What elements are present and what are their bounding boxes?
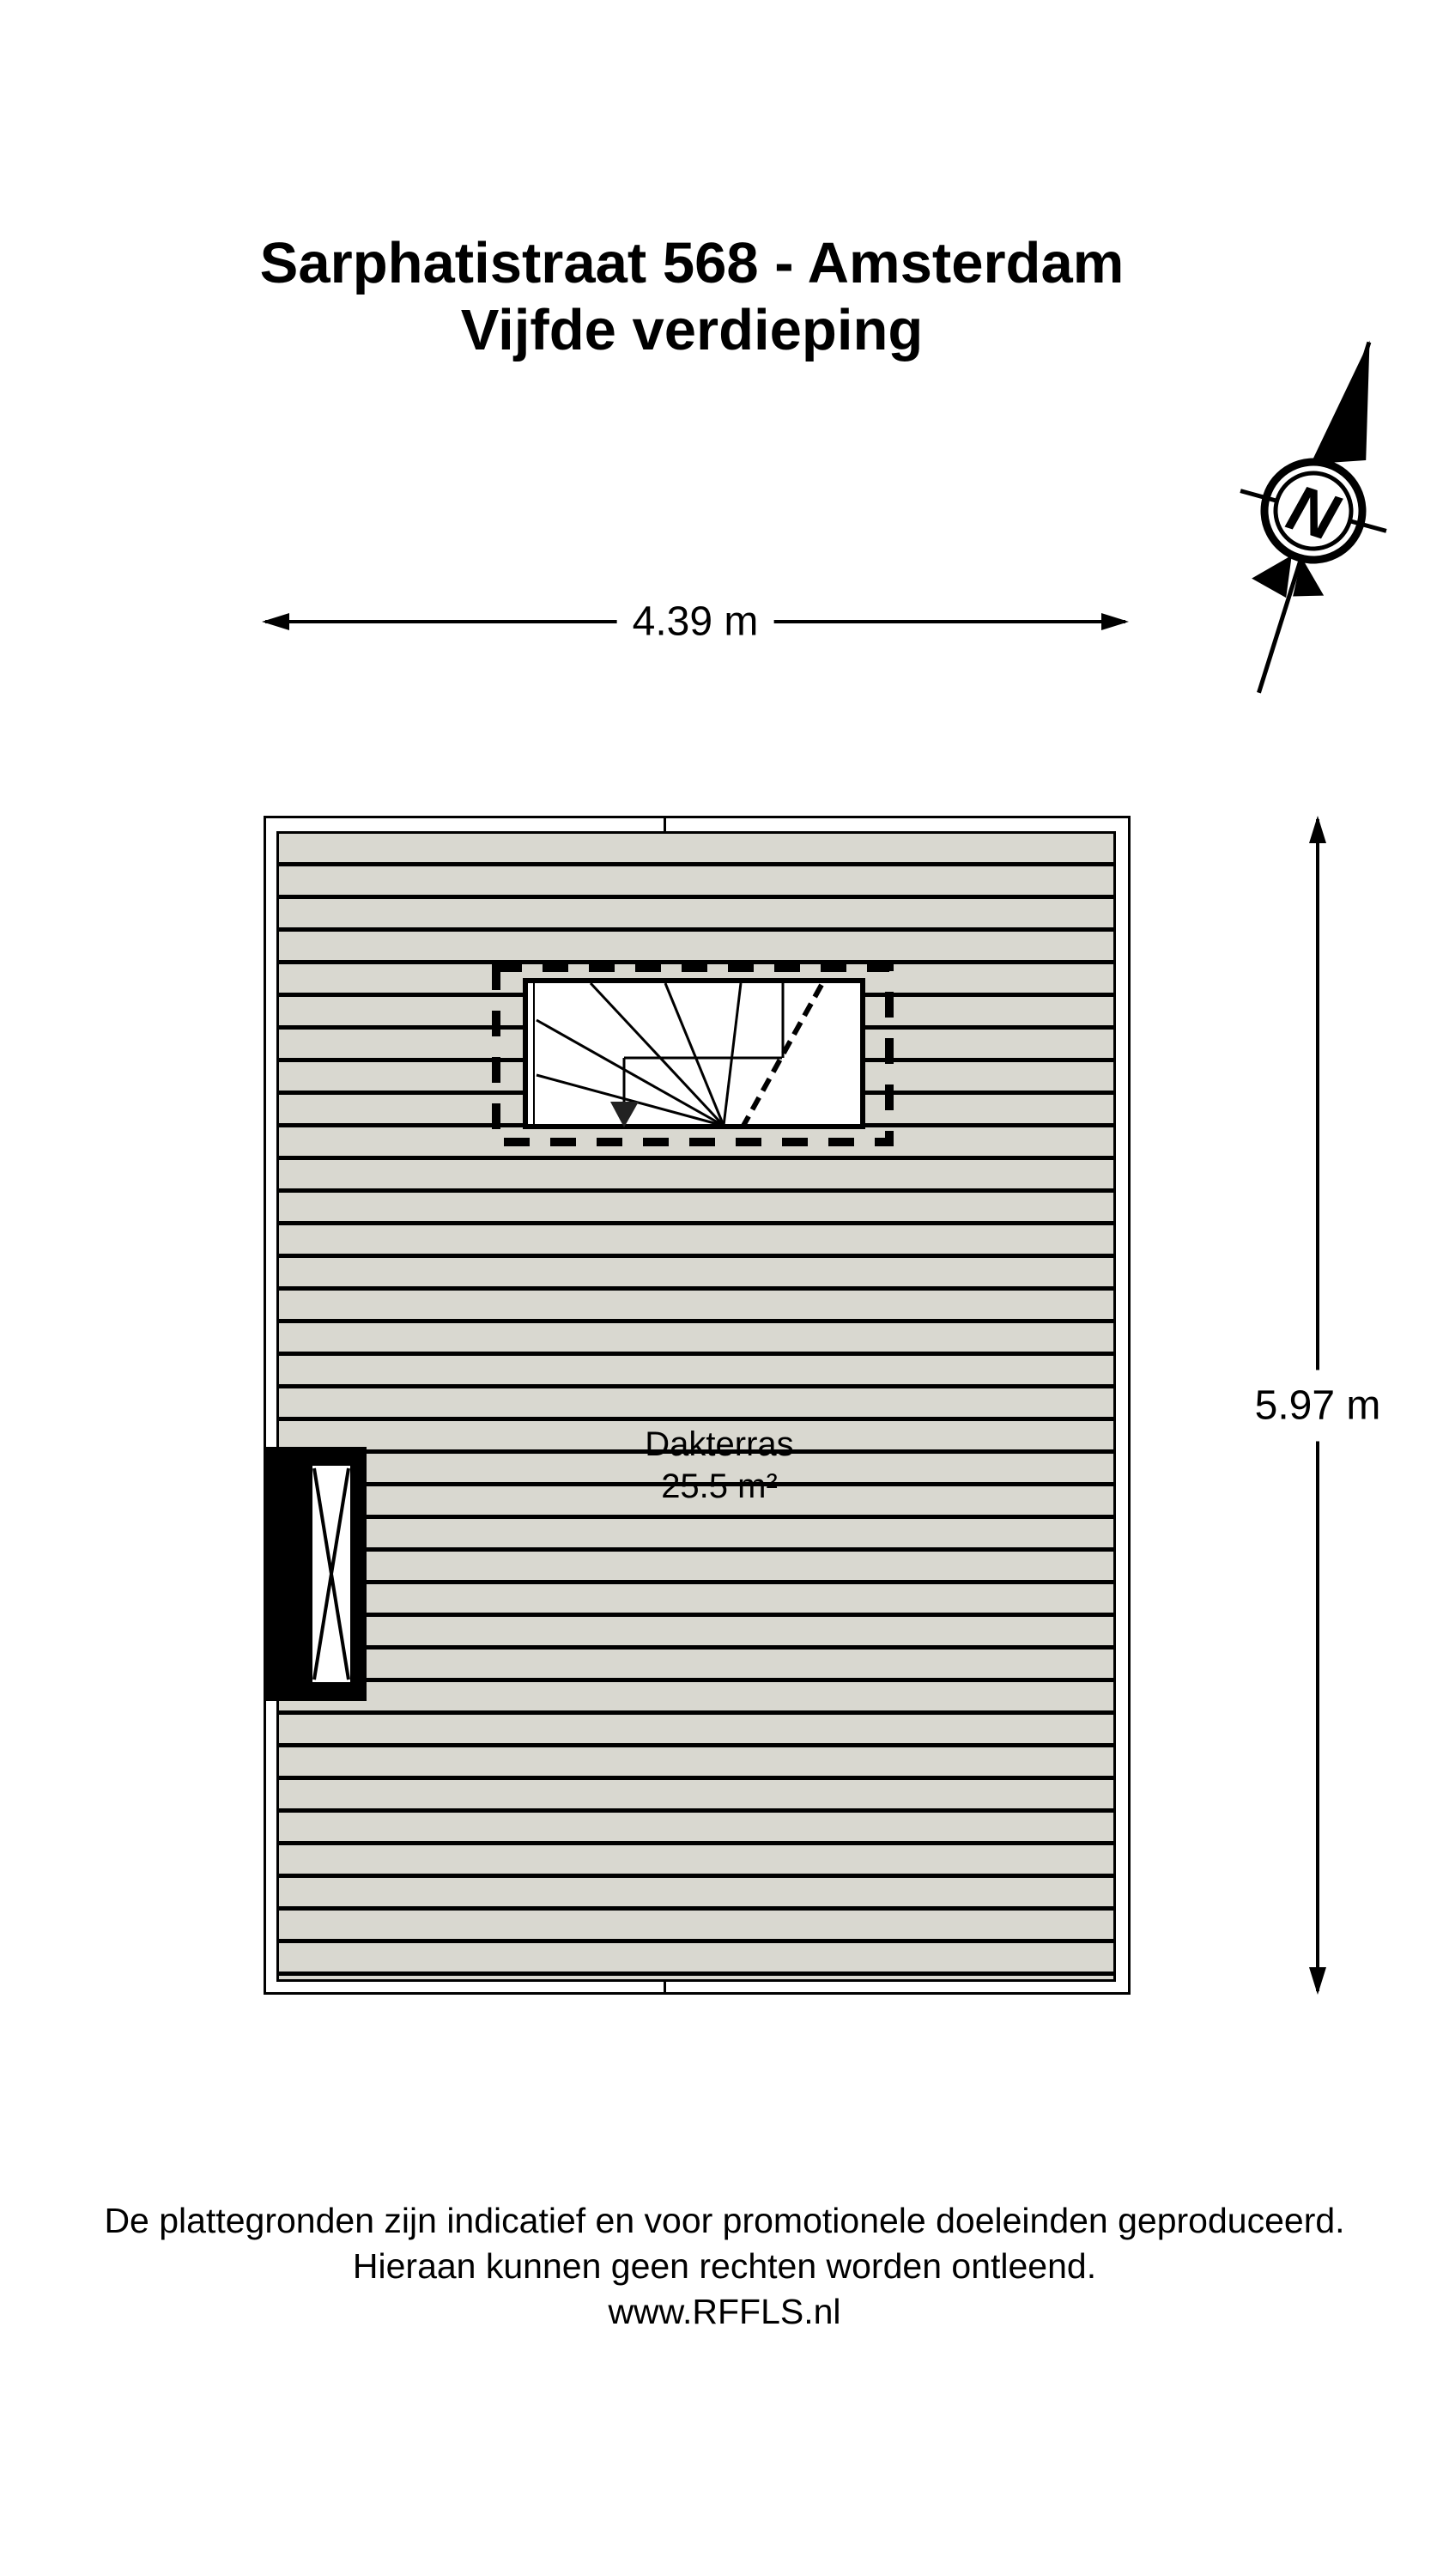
disclaimer: De plattegronden zijn indicatief en voor…	[0, 2198, 1449, 2335]
arrowhead-right-icon	[1101, 613, 1129, 630]
width-dimension: 4.39 m	[262, 611, 1129, 633]
room-label: Dakterras 25.5 m²	[539, 1424, 900, 1508]
arrowhead-down-icon	[1309, 1967, 1326, 1995]
height-dimension-label: 5.97 m	[1246, 1370, 1390, 1441]
height-dimension: 5.97 m	[1306, 816, 1330, 1995]
title-line-1: Sarphatistraat 568 - Amsterdam	[254, 230, 1130, 297]
arrowhead-up-icon	[1309, 816, 1326, 843]
arrowhead-left-icon	[262, 613, 289, 630]
compass-north-icon: N	[1202, 309, 1425, 713]
disclaimer-website: www.RFFLS.nl	[0, 2289, 1449, 2335]
room-area: 25.5 m²	[539, 1466, 900, 1508]
page-title: Sarphatistraat 568 - Amsterdam Vijfde ve…	[254, 230, 1130, 364]
title-line-2: Vijfde verdieping	[254, 297, 1130, 364]
bottom-wall-joint	[664, 1982, 666, 1992]
disclaimer-line-2: Hieraan kunnen geen rechten worden ontle…	[0, 2244, 1449, 2289]
south-pointer-right	[1289, 557, 1332, 605]
top-wall-joint	[664, 818, 666, 831]
stairwell	[481, 951, 906, 1157]
floorplan-page: Sarphatistraat 568 - Amsterdam Vijfde ve…	[0, 0, 1449, 2576]
chimney-vent	[264, 1447, 367, 1701]
room-name: Dakterras	[539, 1424, 900, 1466]
width-dimension-label: 4.39 m	[617, 598, 774, 646]
disclaimer-line-1: De plattegronden zijn indicatief en voor…	[0, 2198, 1449, 2244]
north-arrow	[1311, 335, 1402, 480]
